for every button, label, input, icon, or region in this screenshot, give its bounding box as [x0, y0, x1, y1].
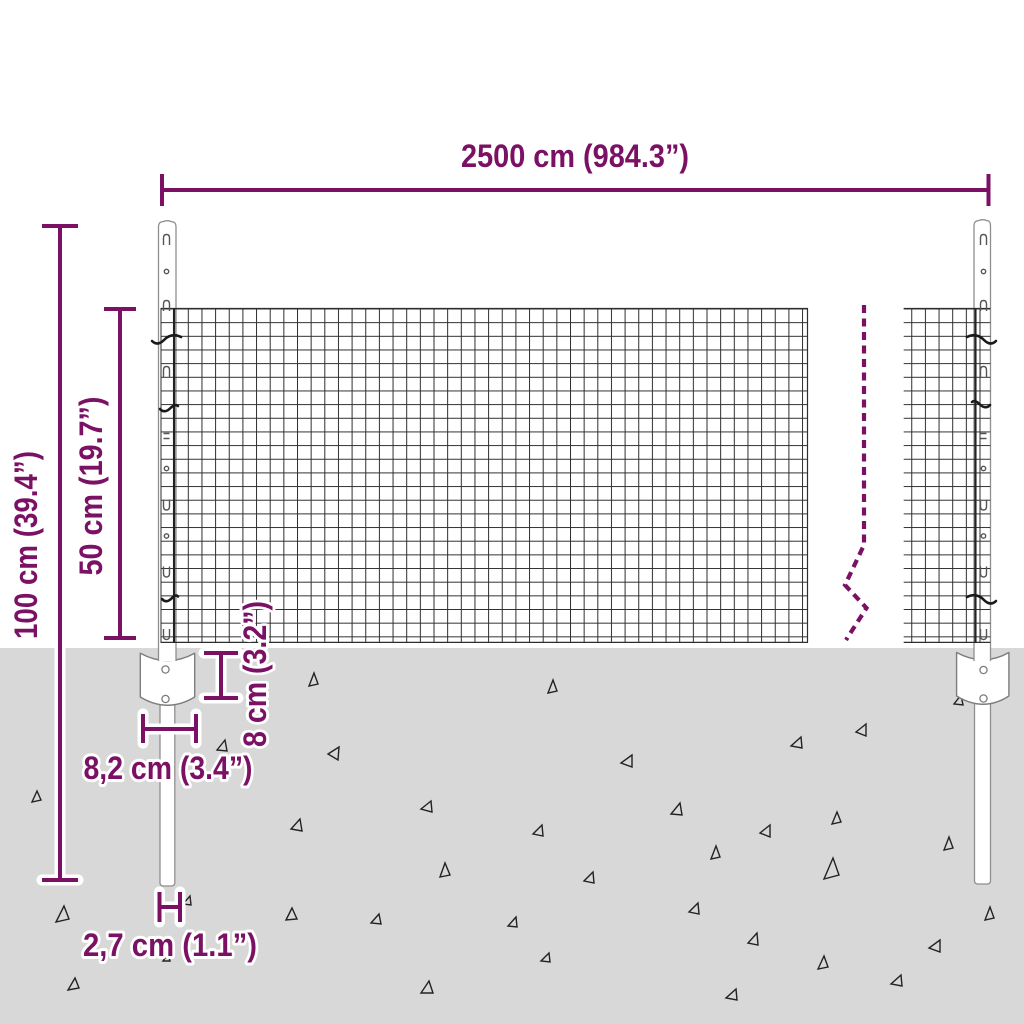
svg-text:100 cm (39.4”): 100 cm (39.4”): [8, 451, 44, 639]
svg-text:8,2 cm (3.4”): 8,2 cm (3.4”): [84, 750, 253, 786]
svg-text:2,7 cm (1.1”): 2,7 cm (1.1”): [83, 927, 257, 963]
svg-text:2500 cm (984.3”): 2500 cm (984.3”): [461, 138, 689, 174]
svg-text:8 cm (3.2”): 8 cm (3.2”): [237, 601, 273, 747]
svg-text:50 cm (19.7”): 50 cm (19.7”): [73, 397, 109, 576]
